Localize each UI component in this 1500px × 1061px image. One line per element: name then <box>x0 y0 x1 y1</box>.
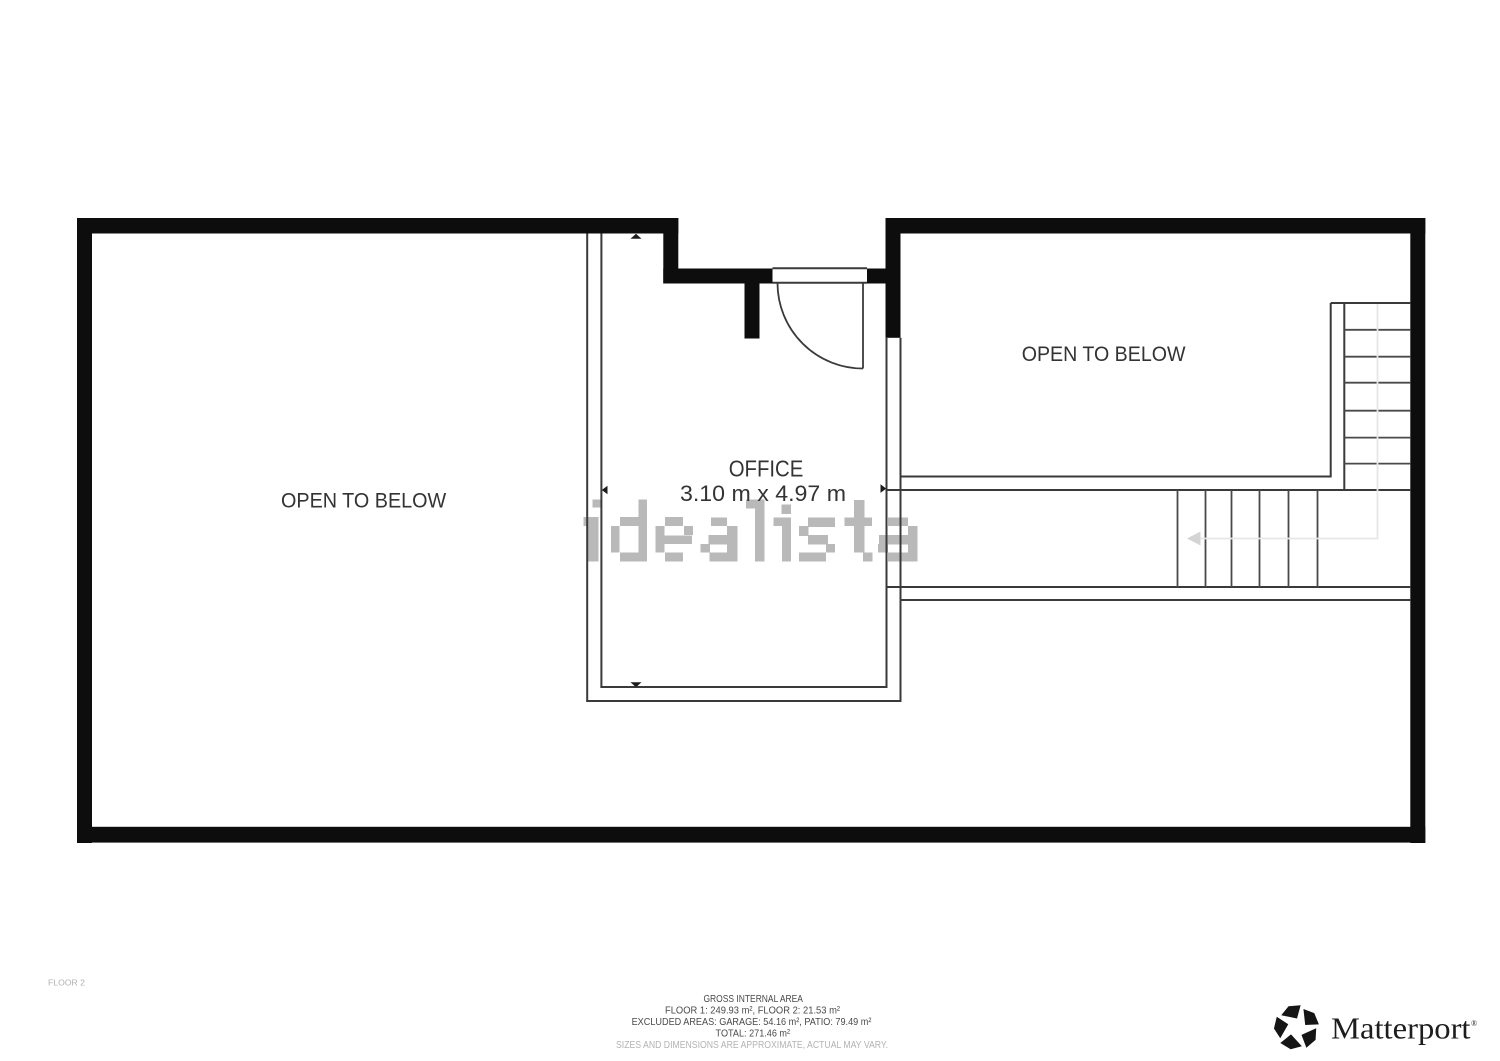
svg-text:Matterport: Matterport <box>1331 1012 1471 1046</box>
svg-text:TOTAL: 271.46 m²: TOTAL: 271.46 m² <box>716 1029 791 1040</box>
svg-text:SIZES AND DIMENSIONS ARE APPRO: SIZES AND DIMENSIONS ARE APPROXIMATE, AC… <box>616 1040 888 1051</box>
svg-text:EXCLUDED AREAS: GARAGE: 54.16: EXCLUDED AREAS: GARAGE: 54.16 m², PATIO:… <box>632 1017 872 1028</box>
svg-text:®: ® <box>1471 1019 1477 1028</box>
svg-text:OPEN TO BELOW: OPEN TO BELOW <box>281 488 447 512</box>
svg-text:FLOOR 1: 249.93 m², FLOOR 2: 2: FLOOR 1: 249.93 m², FLOOR 2: 21.53 m² <box>665 1005 841 1016</box>
svg-text:GROSS INTERNAL AREA: GROSS INTERNAL AREA <box>703 994 803 1005</box>
svg-text:FLOOR 2: FLOOR 2 <box>48 978 85 988</box>
svg-text:OFFICE: OFFICE <box>729 455 804 481</box>
svg-text:OPEN TO BELOW: OPEN TO BELOW <box>1022 342 1187 366</box>
svg-text:3.10 m x 4.97 m: 3.10 m x 4.97 m <box>680 481 846 506</box>
